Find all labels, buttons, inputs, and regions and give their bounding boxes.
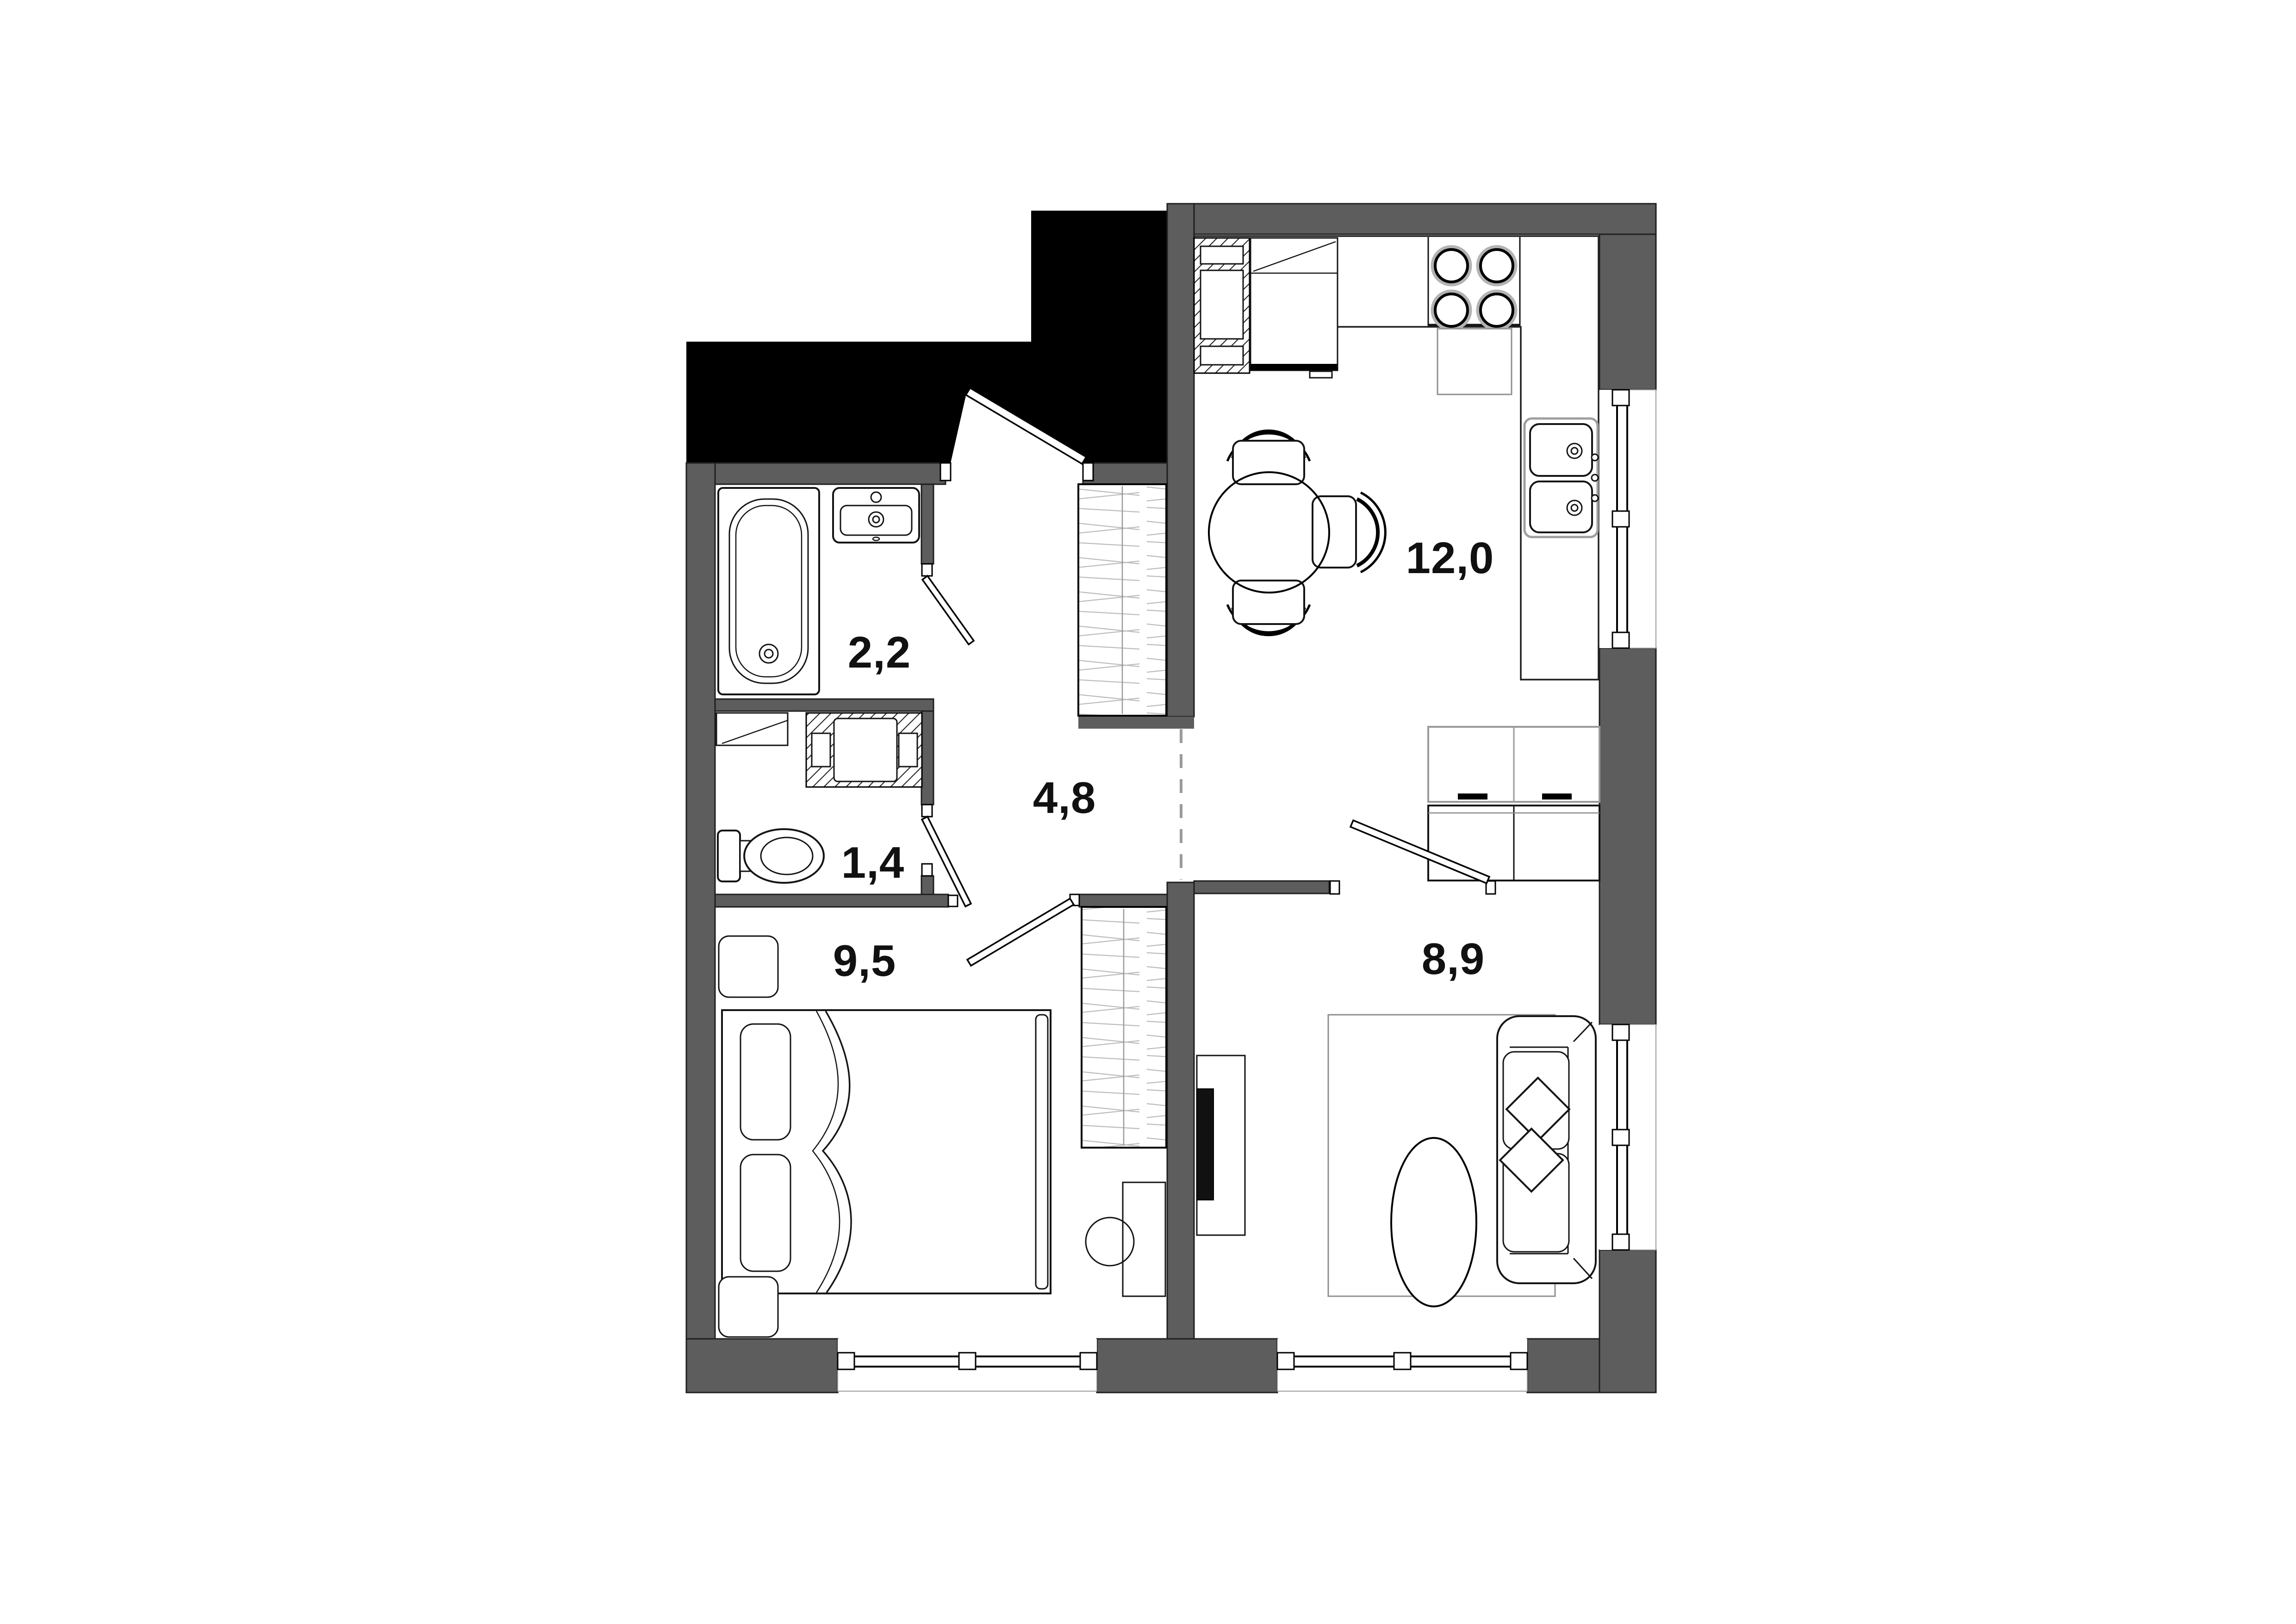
room-label-bedroom: 9,5	[833, 936, 896, 986]
corner-shelf	[716, 713, 788, 745]
coffee-table	[1391, 1138, 1476, 1306]
wall-wardrobe-cap	[1078, 717, 1194, 729]
room-label-toilet: 1,4	[841, 838, 904, 887]
wall-left	[686, 463, 715, 1393]
wall-entrance-left	[686, 463, 946, 484]
wall-right-middle	[1599, 648, 1656, 1024]
toilet	[718, 829, 824, 883]
desk	[1123, 1182, 1165, 1296]
sofa	[1497, 1016, 1596, 1283]
wall-right-lower	[1599, 1250, 1656, 1393]
kitchen-sink	[1524, 418, 1598, 537]
room-label-bathroom: 2,2	[848, 628, 911, 677]
kitchen-window	[1599, 390, 1656, 648]
bed-pillow	[740, 1024, 790, 1140]
living-bottom-window	[1277, 1339, 1527, 1391]
bedroom-window	[838, 1339, 1097, 1391]
wall-top	[1167, 204, 1656, 234]
room-label-kitchen: 12,0	[1406, 533, 1494, 583]
nightstand-top	[719, 936, 778, 997]
bathroom-sink	[833, 488, 919, 543]
wall-toilet-right	[921, 711, 933, 805]
wall-bedroom-living-divider	[1167, 882, 1194, 1339]
floor-plan-drawing: 2,2 1,4 4,8 9,5 12,0 8,9	[0, 0, 2296, 1624]
footboard	[1036, 1015, 1048, 1289]
wall-hall-bedroom-left	[715, 894, 948, 907]
wall-bath-right	[921, 484, 933, 564]
hallway-wardrobe	[1078, 484, 1166, 716]
room-label-living-room: 8,9	[1422, 934, 1485, 984]
wall-bottom-middle	[1097, 1339, 1277, 1393]
bedroom-wardrobe	[1082, 907, 1166, 1148]
fridge	[1194, 238, 1250, 373]
wall-kitchen-left	[1167, 204, 1194, 717]
wall-jamb-return	[921, 876, 933, 894]
tv-stand	[1197, 1056, 1245, 1235]
bed	[722, 1010, 1051, 1293]
wall-right-upper	[1599, 234, 1656, 390]
bathtub	[718, 488, 819, 694]
oven-drawer	[1437, 329, 1512, 394]
wall-bottom-left	[686, 1339, 838, 1393]
floor-plan-page: 2,2 1,4 4,8 9,5 12,0 8,9	[0, 0, 2296, 1624]
nightstand-bottom	[719, 1277, 778, 1337]
washing-machine	[806, 713, 922, 787]
wall-living-stub	[1194, 881, 1329, 893]
wall-hall-bedroom-right	[1079, 894, 1167, 907]
oven-unit	[1251, 238, 1338, 378]
tv-icon	[1197, 1089, 1213, 1200]
living-side-window	[1599, 1024, 1656, 1250]
room-label-hallway: 4,8	[1033, 773, 1096, 823]
wall-entrance-right	[1083, 463, 1167, 484]
wall-bath-toilet	[715, 699, 933, 711]
bed-pillow	[740, 1155, 790, 1271]
